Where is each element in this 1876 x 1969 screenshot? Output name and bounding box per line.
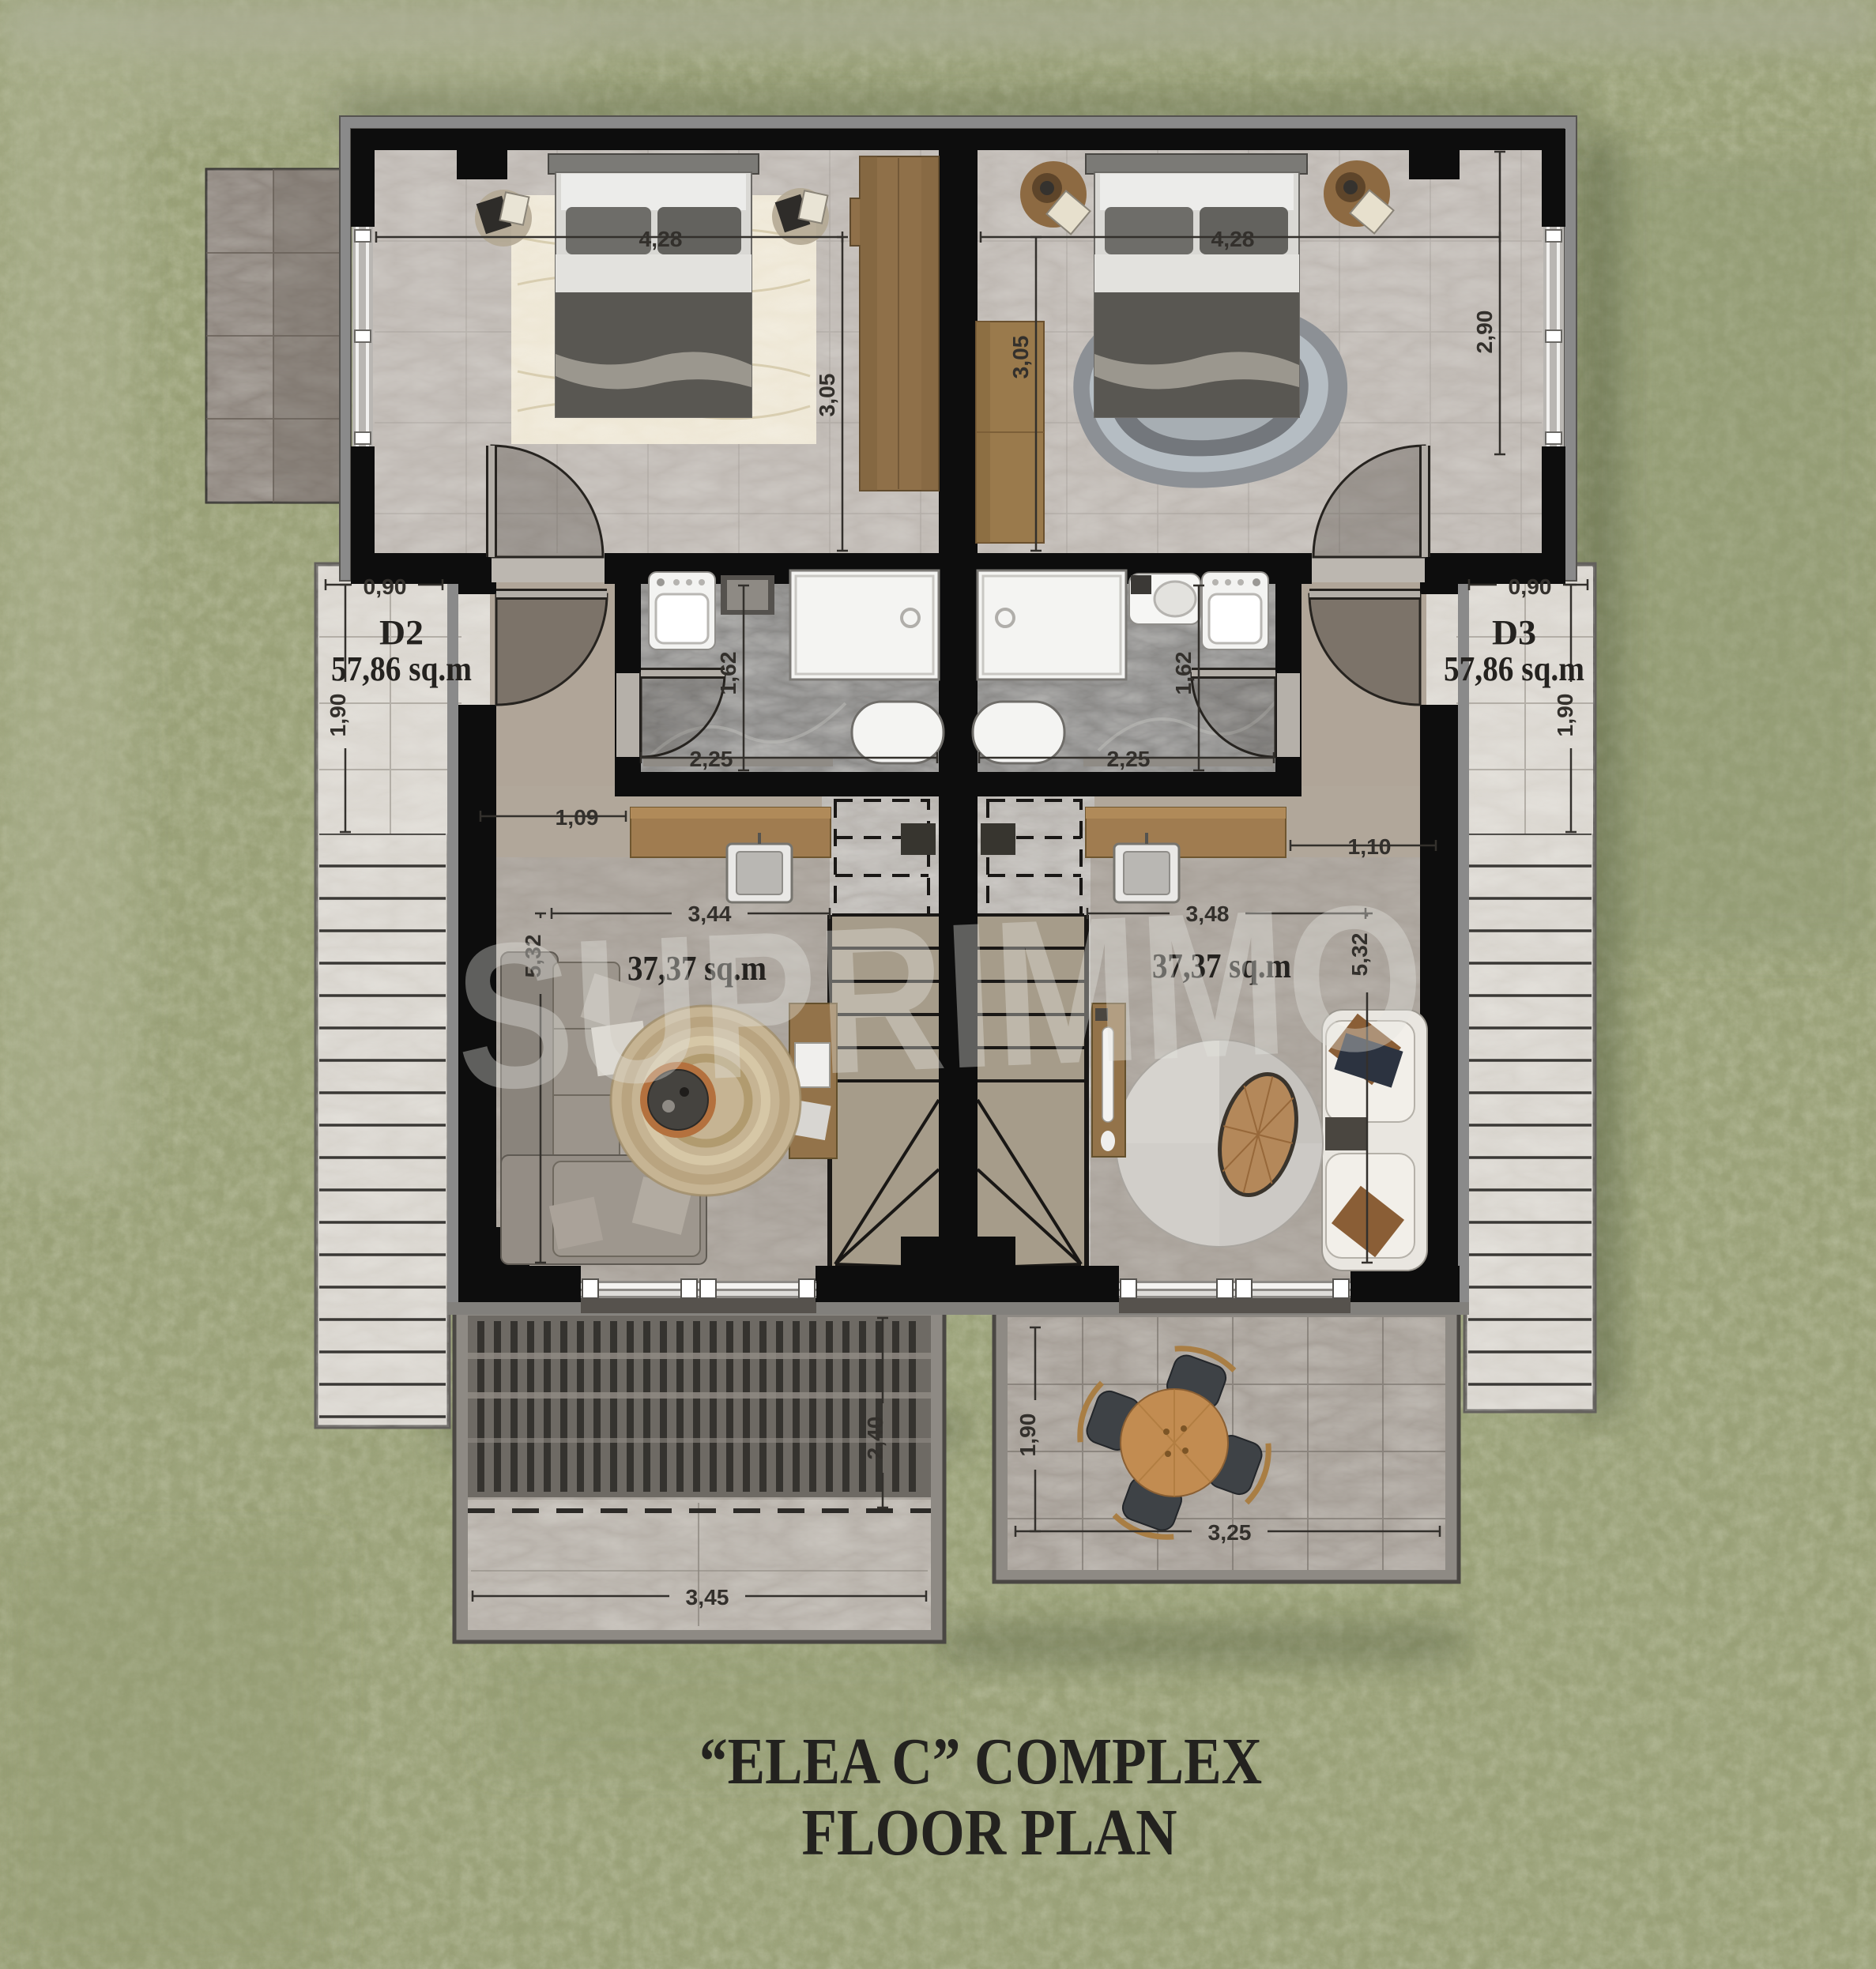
svg-text:D2: D2 (379, 613, 424, 652)
svg-text:57,86 sq.m: 57,86 sq.m (1444, 649, 1584, 688)
svg-text:57,86 sq.m: 57,86 sq.m (331, 649, 472, 688)
svg-text:2,40: 2,40 (863, 1417, 887, 1460)
svg-text:1,90: 1,90 (1553, 694, 1577, 737)
svg-text:0,90: 0,90 (1509, 574, 1552, 599)
svg-text:1,90: 1,90 (326, 694, 350, 737)
svg-text:D3: D3 (1492, 613, 1536, 652)
svg-text:2,25: 2,25 (1107, 747, 1151, 771)
svg-text:0,90: 0,90 (364, 574, 407, 599)
svg-text:3,45: 3,45 (686, 1585, 729, 1609)
svg-text:“ELEA C” COMPLEX: “ELEA C” COMPLEX (699, 1725, 1262, 1798)
svg-text:1,90: 1,90 (1015, 1414, 1040, 1457)
svg-text:2,25: 2,25 (690, 747, 733, 771)
svg-text:4,28: 4,28 (639, 227, 683, 251)
svg-text:1,62: 1,62 (716, 652, 740, 695)
svg-text:4,28: 4,28 (1211, 227, 1255, 251)
svg-text:FLOOR PLAN: FLOOR PLAN (802, 1796, 1177, 1869)
svg-text:3,05: 3,05 (815, 374, 839, 417)
svg-text:3,05: 3,05 (1008, 336, 1033, 379)
svg-text:1,62: 1,62 (1171, 652, 1196, 695)
svg-text:3,25: 3,25 (1208, 1520, 1252, 1545)
svg-text:SUPRIMMO: SUPRIMMO (451, 860, 1429, 1133)
svg-text:1,10: 1,10 (1348, 834, 1392, 859)
svg-text:2,90: 2,90 (1472, 311, 1497, 354)
svg-text:1,09: 1,09 (556, 805, 599, 830)
